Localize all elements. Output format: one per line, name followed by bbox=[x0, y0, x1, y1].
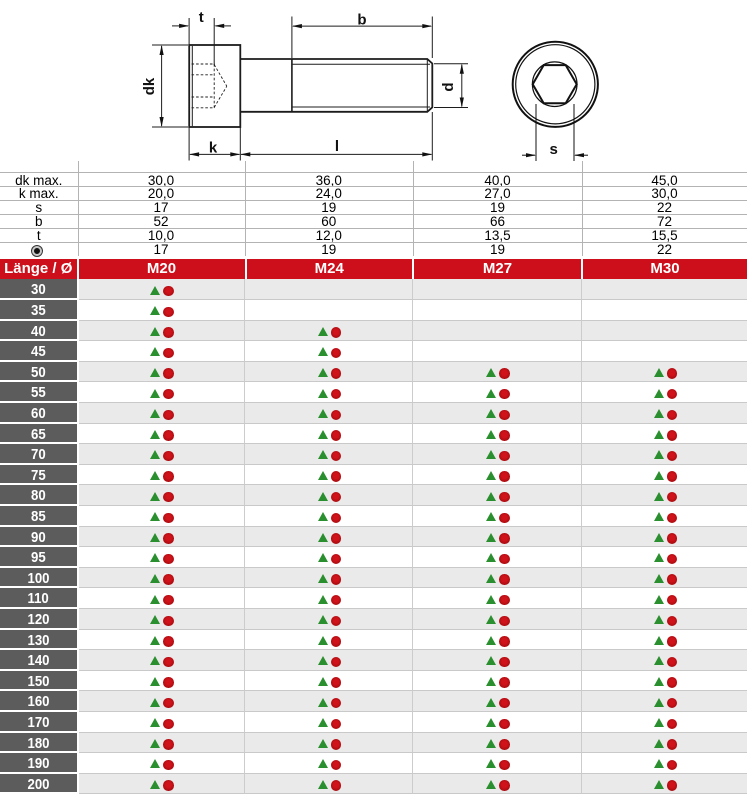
svg-text:t: t bbox=[199, 9, 204, 26]
svg-text:d: d bbox=[440, 82, 457, 91]
svg-text:b: b bbox=[357, 12, 366, 29]
svg-text:dk: dk bbox=[141, 77, 158, 95]
svg-text:l: l bbox=[335, 138, 339, 155]
svg-text:k: k bbox=[209, 140, 218, 157]
svg-text:s: s bbox=[550, 141, 558, 158]
